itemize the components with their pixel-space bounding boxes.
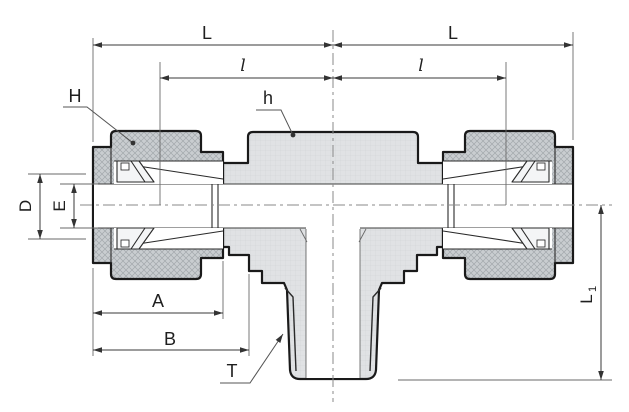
label-E: E	[50, 200, 69, 211]
tee-fitting-diagram: L L l l D E A B L	[0, 0, 629, 412]
engineering-drawing: L L l l D E A B L	[0, 0, 629, 412]
label-L-left: L	[202, 23, 212, 43]
label-H: H	[69, 86, 82, 106]
label-h: h	[263, 88, 273, 108]
label-L-right: L	[448, 23, 458, 43]
ferrule-highlight-bottom	[121, 240, 129, 247]
label-T: T	[227, 361, 238, 381]
callout-h: h	[256, 88, 295, 137]
label-B: B	[164, 329, 176, 349]
label-L1: L 1	[577, 286, 599, 304]
svg-text:L: L	[577, 294, 596, 303]
leader-dot-h	[291, 133, 296, 138]
dim-D: D	[16, 174, 43, 239]
label-D: D	[16, 200, 35, 212]
dim-E: E	[50, 184, 77, 228]
callout-H: H	[63, 86, 135, 145]
leader-arrow-T	[276, 334, 283, 343]
dim-L1: L 1	[577, 205, 604, 380]
dim-A: A	[93, 291, 223, 316]
ferrule-highlight-top	[121, 163, 129, 170]
svg-text:1: 1	[587, 286, 599, 292]
label-l-left: l	[240, 56, 245, 76]
dim-B: B	[93, 329, 249, 353]
label-A: A	[152, 291, 164, 311]
leader-dot-H	[131, 141, 136, 146]
label-l-right: l	[418, 56, 423, 76]
callout-T: T	[220, 334, 283, 383]
